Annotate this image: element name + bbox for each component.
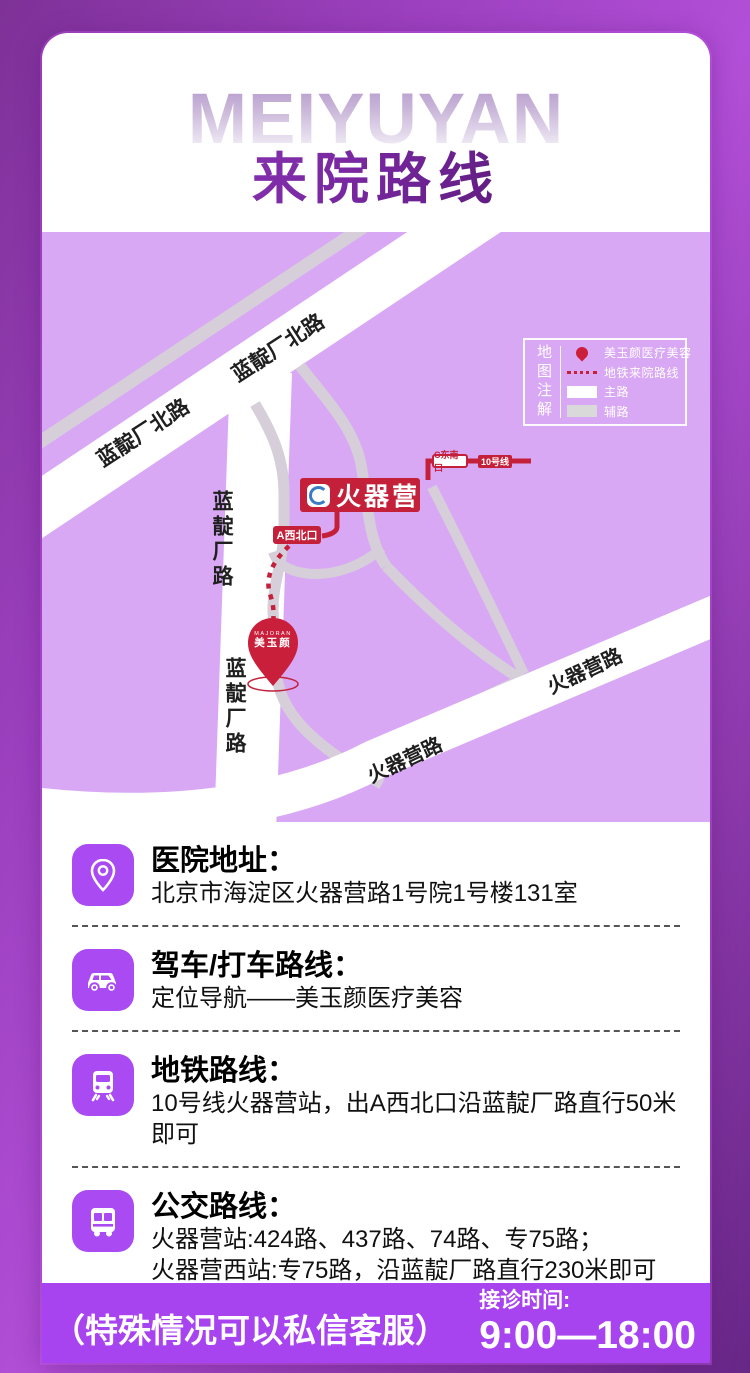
location-pin-icon <box>72 844 134 906</box>
map-legend: 地图注解 美玉颜医疗美容 地铁来院路线 主路 <box>523 338 687 426</box>
dashed-divider <box>72 925 680 927</box>
exit-a-connector <box>322 511 337 536</box>
section-title: 公交路线： <box>151 1190 656 1224</box>
metro-station-badge: 火器营 <box>300 478 420 512</box>
section-line: 火器营站:424路、437路、74路、专75路； <box>151 1224 656 1255</box>
legend-item-clinic: 美玉颜医疗美容 <box>567 343 692 362</box>
legend-title: 地图注解 <box>533 344 554 420</box>
dashed-divider <box>72 1166 680 1168</box>
bus-icon <box>72 1190 134 1252</box>
road-label-landianchang-1: 蓝靛厂路 <box>206 490 236 590</box>
aux-road-station-loop <box>273 548 382 574</box>
section-driving: 驾车/打车路线： 定位导航——美玉颜医疗美容 <box>72 949 680 1014</box>
section-bus: 公交路线： 火器营站:424路、437路、74路、专75路； 火器营西站:专75… <box>72 1190 680 1286</box>
map-canvas <box>42 232 710 822</box>
aux-road-southeast-1 <box>386 566 534 687</box>
road-label-landianchang-2: 蓝靛厂路 <box>219 657 249 757</box>
exit-a-label: A西北口 <box>273 526 321 544</box>
section-title: 地铁路线： <box>151 1054 680 1088</box>
content-card: MEIYUYAN 来院路线 <box>42 33 710 1363</box>
section-line: 北京市海淀区火器营路1号院1号楼131室 <box>151 878 578 909</box>
footer-bar: （特殊情况可以私信客服） 接诊时间: 9:00—18:00 <box>42 1283 710 1363</box>
hours-value: 9:00—18:00 <box>479 1316 696 1355</box>
legend-dotted-line-icon <box>567 371 597 374</box>
section-metro: 地铁路线： 10号线火器营站，出A西北口沿蓝靛厂路直行50米即可 <box>72 1054 680 1150</box>
legend-item-route: 地铁来院路线 <box>567 363 692 382</box>
exit-c-label: C东南口 <box>432 454 468 468</box>
footer-hours-block: 接诊时间: 9:00—18:00 <box>479 1284 696 1355</box>
legend-pin-icon <box>574 344 591 361</box>
legend-main-road-swatch <box>567 386 597 398</box>
route-map: 蓝靛厂北路 蓝靛厂北路 蓝靛厂路 蓝靛厂路 火器营路 火器营路 地图注解 美玉颜… <box>42 232 710 822</box>
section-title: 驾车/打车路线： <box>151 949 463 983</box>
line10-badge: 10号线 <box>478 455 512 468</box>
header: MEIYUYAN 来院路线 <box>42 33 710 232</box>
footer-note: （特殊情况可以私信客服） <box>52 1304 448 1352</box>
legend-side-road-swatch <box>567 405 597 417</box>
section-line: 10号线火器营站，出A西北口沿蓝靛厂路直行50米即可 <box>151 1088 680 1150</box>
section-title: 医院地址： <box>151 844 578 878</box>
section-address: 医院地址： 北京市海淀区火器营路1号院1号楼131室 <box>72 844 680 909</box>
info-sections: 医院地址： 北京市海淀区火器营路1号院1号楼131室 <box>42 844 710 1304</box>
section-line: 定位导航——美玉颜医疗美容 <box>151 983 463 1014</box>
legend-item-main-road: 主路 <box>567 382 692 401</box>
clinic-pin-text: MAJORAN 美玉颜 <box>248 631 298 649</box>
car-icon <box>72 949 134 1011</box>
dashed-divider <box>72 1030 680 1032</box>
page-title: 来院路线 <box>42 134 710 214</box>
poster-page: MEIYUYAN 来院路线 <box>0 0 750 1373</box>
legend-divider <box>560 346 561 418</box>
legend-item-side-road: 辅路 <box>567 402 692 421</box>
subway-logo-icon <box>307 484 330 507</box>
train-icon <box>72 1054 134 1116</box>
section-line: 火器营西站:专75路，沿蓝靛厂路直行230米即可 <box>151 1255 656 1286</box>
hours-label: 接诊时间: <box>479 1284 696 1314</box>
